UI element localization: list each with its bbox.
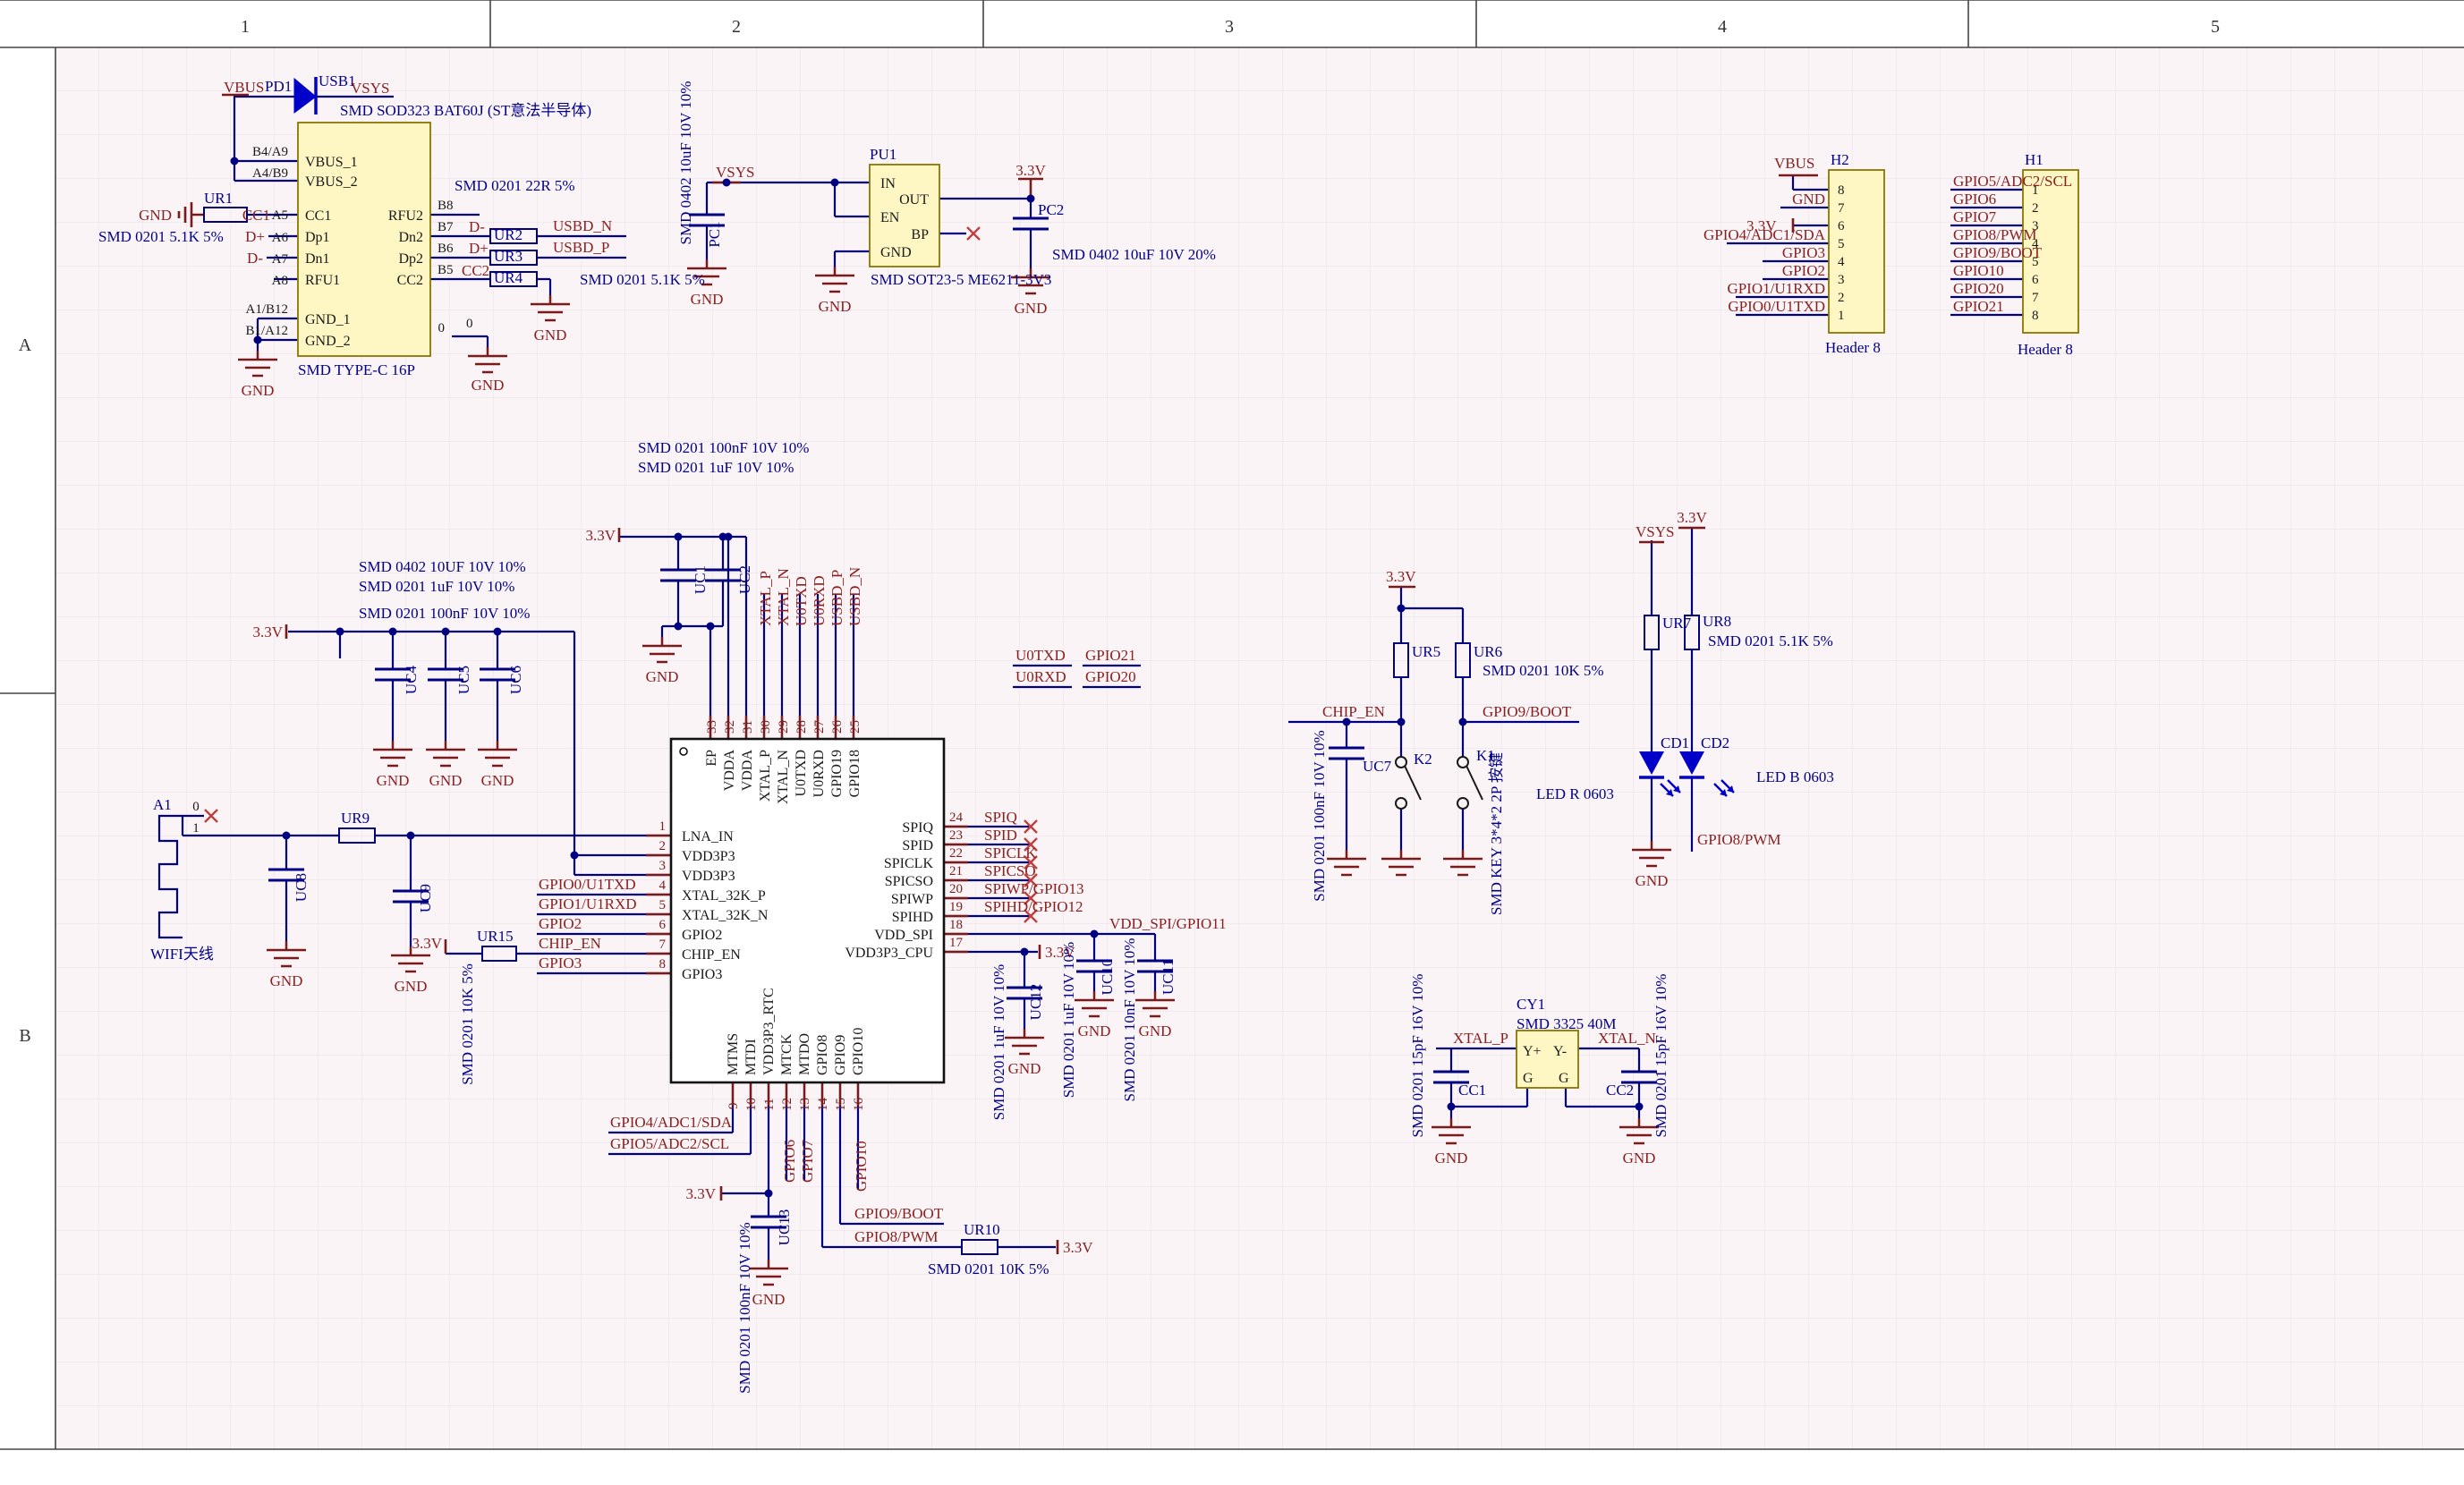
pin-number: 29 (777, 720, 791, 734)
net-label: CC2 (462, 262, 489, 279)
pin-number: 7 (1838, 201, 1845, 216)
net-label: GPIO1/U1RXD (1727, 280, 1825, 297)
value-pc1: SMD 0402 10uF 10V 10% (677, 81, 694, 245)
designator-ur3: UR3 (494, 248, 523, 265)
designator-uc6: UC6 (507, 666, 524, 694)
pin-number: 21 (949, 864, 963, 878)
pin-name: VDD3P3_CPU (845, 946, 933, 961)
net-label: GPIO7 (1953, 208, 1997, 225)
value-h2: Header 8 (1825, 339, 1881, 356)
pin-number: A7 (272, 252, 289, 267)
net-label: D+ (245, 228, 265, 245)
net-label-vsys: VSYS (1636, 523, 1674, 540)
pin-name: EN (880, 210, 900, 225)
pin-number: 5 (659, 898, 667, 912)
gnd-label: GND (242, 382, 275, 399)
gnd-label: GND (752, 1291, 786, 1308)
designator-ur10: UR10 (964, 1221, 1000, 1238)
value-ur15: SMD 0201 10K 5% (459, 963, 476, 1085)
pin-name: SPIQ (902, 820, 933, 836)
pin-number: 4 (2032, 237, 2039, 251)
net-label: GPIO0/U1TXD (539, 876, 636, 893)
pin-number: 13 (798, 1098, 812, 1111)
pin-name: EP (704, 750, 719, 767)
gnd-label: GND (1078, 1023, 1111, 1039)
net-label: SPIWP/GPIO13 (984, 880, 1083, 897)
gnd-label: GND (646, 668, 679, 685)
designator-pc2: PC2 (1038, 201, 1064, 218)
net-label: GPIO21 (1953, 298, 2004, 315)
designator-uc11: UC11 (1160, 959, 1177, 995)
value-pd1: SMD SOD323 BAT60J (ST意法半导体) (340, 102, 591, 119)
net-label: D- (247, 250, 263, 267)
pin-name: G (1523, 1071, 1534, 1086)
pin-name: GPIO2 (682, 928, 722, 943)
pin-number: 14 (816, 1098, 830, 1112)
pin-name: GND (880, 245, 912, 260)
pin-name: VBUS_1 (305, 155, 358, 170)
pin-number: 6 (659, 918, 667, 932)
gnd-label: GND (429, 772, 463, 789)
net-label: U0TXD (793, 576, 810, 626)
gnd-label: GND (270, 972, 303, 989)
value-uc1: SMD 0201 100nF 10V 10% (638, 439, 809, 456)
pin-name: Y- (1553, 1044, 1567, 1059)
pin-number: 0 (466, 317, 473, 331)
pin-number: 31 (741, 720, 755, 734)
pin-name: XTAL_N (776, 750, 791, 804)
designator-ur4: UR4 (494, 269, 523, 286)
net-label: SPICSO (984, 862, 1036, 879)
pin-number: 11 (762, 1099, 777, 1111)
pin-number: 1 (1838, 309, 1845, 323)
designator-cd2: CD2 (1701, 734, 1729, 751)
gnd-label: GND (691, 291, 724, 308)
designator-cy1: CY1 (1517, 996, 1545, 1013)
designator-ur2: UR2 (494, 226, 523, 243)
pin-number: 28 (794, 720, 809, 734)
pin-name: XTAL_32K_P (682, 888, 766, 904)
net-label: GPIO10 (1953, 262, 2004, 279)
pin-name: GND_1 (305, 312, 351, 327)
value-h1: Header 8 (2018, 341, 2073, 358)
gnd-label: GND (139, 207, 172, 224)
ruler-column-3: 3 (1225, 17, 1234, 37)
pin-name: G (1559, 1071, 1569, 1086)
pin-name: XTAL_32K_N (682, 908, 769, 923)
net-label: GPIO3 (539, 955, 582, 972)
pin-name: BP (911, 227, 929, 242)
designator-ur8: UR8 (1703, 613, 1731, 630)
designator-uc13: UC13 (776, 1209, 793, 1246)
net-label: CC1 (242, 207, 270, 224)
net-label: GPIO9/BOOT (1483, 703, 1572, 720)
pin-number: 4 (1838, 255, 1845, 269)
designator-k2: K2 (1414, 751, 1432, 768)
pin-number: 1 (192, 821, 200, 836)
net-label: GPIO4/ADC1/SDA (610, 1114, 733, 1131)
pin-number: 15 (834, 1098, 848, 1111)
pin-name: VBUS_2 (305, 174, 358, 190)
net-label: VDD_SPI/GPIO11 (1109, 915, 1227, 932)
value-uc2: SMD 0201 1uF 10V 10% (638, 459, 794, 476)
pin-number: 32 (723, 720, 737, 734)
designator-pu1: PU1 (870, 146, 896, 163)
pin-name: GPIO18 (847, 750, 862, 797)
pin-number: 0 (438, 321, 446, 335)
net-label: GPIO5/ADC2/SCL (1953, 173, 2072, 190)
pin-number: 27 (812, 720, 827, 734)
net-label: GPIO8/PWM (1697, 831, 1781, 848)
pin-number: 5 (2032, 255, 2039, 269)
pin-number: 19 (949, 900, 963, 914)
designator-uc7: UC7 (1363, 758, 1392, 775)
net-label: XTAL_N (775, 568, 792, 626)
net-label: USBD_P (553, 239, 609, 256)
pin-name: GPIO9 (833, 1035, 848, 1075)
pin-number: 12 (780, 1098, 794, 1111)
pin-number: 20 (949, 882, 963, 896)
pin-number: 23 (949, 828, 963, 843)
schematic-canvas[interactable]: 12345AB (0, 0, 2464, 1485)
net-label: GPIO6 (1953, 191, 1996, 208)
pin-number: 7 (2032, 291, 2039, 305)
pin-number: 1 (2032, 183, 2039, 198)
net-label: U0RXD (811, 575, 828, 626)
pin-name: SPICLK (884, 856, 934, 871)
pin-name: Dn2 (398, 230, 423, 245)
pin-name: OUT (899, 192, 929, 208)
net-label: U0TXD (1015, 647, 1066, 664)
designator-uc5: UC5 (455, 666, 472, 694)
net-label: 3.3V (685, 1185, 716, 1202)
ruler-column-4: 4 (1718, 17, 1727, 37)
pin-name: CHIP_EN (682, 947, 741, 963)
net-label: GPIO8/PWM (1953, 226, 2037, 243)
value-cd1: LED R 0603 (1536, 785, 1614, 802)
net-label: GPIO8/PWM (854, 1228, 939, 1245)
pin-number: A8 (272, 274, 288, 288)
net-label: XTAL_P (1453, 1030, 1508, 1047)
value-uc12: SMD 0201 1uF 10V 10% (990, 964, 1007, 1120)
net-label: GPIO6 (781, 1140, 798, 1183)
net-label: VBUS (1774, 155, 1814, 172)
net-label: GPIO2 (1782, 262, 1825, 279)
pin-number: 0 (192, 800, 200, 814)
pin-number: 24 (949, 810, 964, 825)
value-uc10: SMD 0201 1uF 10V 10% (1060, 942, 1077, 1098)
pin-name: GPIO3 (682, 967, 722, 982)
net-label: XTAL_N (1598, 1030, 1656, 1047)
gnd-label: GND (1636, 872, 1669, 889)
ruler-row-A: A (19, 335, 32, 355)
pin-name: VDD_SPI (874, 928, 933, 943)
pin-name: MTCK (779, 1033, 794, 1075)
value-cc2: SMD 0201 15pF 16V 10% (1653, 974, 1670, 1138)
net-label: GPIO2 (539, 915, 582, 932)
pin-number: 33 (705, 720, 719, 734)
pin-number: B5 (438, 263, 454, 277)
designator-cd1: CD1 (1661, 734, 1689, 751)
designator-uc8: UC8 (293, 873, 310, 902)
net-label: GPIO5/ADC2/SCL (610, 1135, 729, 1152)
pin-name: SPIHD (892, 910, 933, 925)
pin-number: 26 (830, 720, 845, 734)
net-label: U0RXD (1015, 668, 1066, 685)
schematic-sheet: 12345AB (0, 0, 2464, 1485)
value-ur8: SMD 0201 5.1K 5% (1708, 632, 1833, 649)
pin-number: 4 (659, 878, 667, 893)
pin-name: GND_2 (305, 334, 351, 349)
pin-number: 10 (744, 1098, 759, 1111)
pin-number: 6 (1838, 219, 1845, 233)
net-label: GPIO20 (1085, 668, 1136, 685)
pin-number: 18 (949, 918, 963, 932)
value-usb1: SMD TYPE-C 16P (298, 361, 415, 378)
gnd-label: GND (472, 377, 505, 394)
value-ur6: SMD 0201 10K 5% (1483, 662, 1604, 679)
ruler-column-5: 5 (2211, 17, 2220, 37)
pin-number: 17 (949, 936, 964, 950)
value-pc2: SMD 0402 10uF 10V 20% (1052, 246, 1216, 263)
designator-ur9: UR9 (341, 810, 370, 827)
value-uc6: SMD 0201 100nF 10V 10% (359, 605, 530, 622)
net-label: GPIO4/ADC1/SDA (1704, 226, 1826, 243)
designator-uc2: UC2 (736, 565, 753, 594)
net-label: SPID (984, 827, 1017, 844)
value-keys: SMD KEY 3*4*2 2P 按键 (1488, 752, 1505, 915)
pin-name: GPIO10 (851, 1028, 866, 1075)
net-label: GPIO10 (853, 1141, 870, 1192)
gnd-label: GND (1623, 1150, 1656, 1167)
net-label: SPICLK (984, 844, 1037, 861)
value-uc13: SMD 0201 100nF 10V 10% (736, 1222, 753, 1393)
pin-name: VDD3P3 (682, 849, 735, 864)
pin-number: 7 (659, 938, 667, 952)
pin-name: CC2 (397, 273, 423, 288)
pin-name: SPICSO (885, 874, 933, 889)
net-label: 3.3V (1063, 1239, 1093, 1256)
net-label: GPIO9/BOOT (1953, 244, 2043, 261)
net-label: 3.3V (1386, 568, 1416, 585)
gnd-label: GND (395, 978, 428, 995)
value-cc1: SMD 0201 15pF 16V 10% (1409, 974, 1426, 1138)
net-label: 3.3V (1677, 509, 1707, 526)
gnd-label: GND (1435, 1150, 1468, 1167)
pin-name: MTMS (726, 1033, 741, 1075)
pin-name: RFU2 (388, 208, 423, 224)
net-label: GND (1792, 191, 1825, 208)
pin-name: SPID (902, 838, 933, 853)
pin-number: 6 (2032, 273, 2039, 287)
designator-ur7: UR7 (1662, 615, 1692, 632)
designator-pc1: PC1 (706, 221, 723, 247)
pin-number: 3 (659, 859, 667, 873)
pin-name: VDDA (740, 750, 755, 792)
designator-uc4: UC4 (403, 665, 420, 694)
pin-name: RFU1 (305, 273, 340, 288)
pin-number: B6 (438, 242, 454, 256)
pin-number: A6 (272, 231, 289, 245)
pin-number: 5 (1838, 237, 1845, 251)
gnd-label: GND (819, 298, 852, 315)
gnd-label: GND (377, 772, 410, 789)
designator-pd1: PD1 (265, 78, 292, 95)
pin-number: 16 (852, 1098, 866, 1112)
designator-uc1: UC1 (692, 565, 709, 594)
value-ur1: SMD 0201 5.1K 5% (98, 228, 224, 245)
pin-number: 3 (1838, 273, 1845, 287)
net-label: XTAL_P (757, 571, 774, 626)
pin-number: 2 (659, 839, 667, 853)
net-label: GPIO20 (1953, 280, 2004, 297)
value-uc7: SMD 0201 100nF 10V 10% (1311, 730, 1328, 901)
net-label: USBD_N (553, 217, 612, 234)
pin-number: 8 (659, 957, 667, 972)
net-label: 3.3V (252, 624, 283, 641)
value-ur10: SMD 0201 10K 5% (928, 1260, 1049, 1277)
pin-name: Dp1 (305, 230, 330, 245)
net-label: USBD_P (828, 570, 845, 626)
pin-number: A4/B9 (252, 166, 288, 181)
designator-uc9: UC9 (417, 884, 434, 912)
gnd-label: GND (1015, 300, 1048, 317)
pin-name: VDD3P3_RTC (761, 988, 777, 1075)
net-label: GPIO3 (1782, 244, 1825, 261)
designator-a1: A1 (153, 796, 172, 813)
pin-name: Dn1 (305, 251, 330, 267)
value-cd2: LED B 0603 (1756, 768, 1834, 785)
designator-ur15: UR15 (477, 928, 514, 945)
designator-ur1: UR1 (204, 190, 233, 207)
net-label: GPIO0/U1TXD (1728, 298, 1825, 315)
net-label: GPIO1/U1RXD (539, 895, 637, 912)
pin-number: B1/A12 (245, 324, 288, 338)
pin-name: CC1 (305, 208, 331, 224)
pin-name: XTAL_P (758, 750, 773, 802)
net-label: CHIP_EN (1322, 703, 1385, 720)
pin-name: U0RXD (811, 750, 827, 797)
ruler-column-2: 2 (732, 17, 741, 37)
ruler-column-1: 1 (241, 17, 250, 37)
pin-number: 1 (659, 819, 667, 834)
gnd-label: GND (1139, 1023, 1172, 1039)
net-label-vbus: VBUS (224, 79, 264, 96)
pin-name: IN (880, 176, 896, 191)
net-label: D+ (469, 240, 489, 257)
pin-name: GPIO19 (829, 750, 845, 797)
pin-name: SPIWP (891, 892, 933, 907)
designator-uc10: UC10 (1099, 959, 1116, 996)
net-label: SPIQ (984, 809, 1017, 826)
pin-name: VDD3P3 (682, 869, 735, 884)
value-ur2: SMD 0201 22R 5% (455, 177, 575, 194)
value-uc4: SMD 0402 10UF 10V 10% (359, 558, 526, 575)
net-label: USBD_N (846, 567, 863, 626)
net-label: GPIO7 (799, 1139, 816, 1183)
pin-number: 25 (848, 720, 862, 734)
designator-ur5: UR5 (1412, 643, 1440, 660)
designator-cc2: CC2 (1606, 1082, 1634, 1099)
pin-number: 22 (949, 846, 963, 861)
pin-number: B4/A9 (252, 145, 288, 159)
value-uc5: SMD 0201 1uF 10V 10% (359, 578, 514, 595)
value-ur4: SMD 0201 5.1K 5% (580, 271, 705, 288)
pin-name: VDDA (722, 750, 737, 792)
pin-number: B8 (438, 199, 454, 213)
designator-ur6: UR6 (1474, 643, 1502, 660)
value-pu1: SMD SOT23-5 ME6211-3V3 (871, 271, 1051, 288)
pin-number: A5 (272, 208, 288, 223)
pin-number: A1/B12 (245, 302, 288, 317)
pin-name: U0TXD (794, 750, 809, 796)
pin-number: 3 (2032, 219, 2039, 233)
net-label-vsys: VSYS (716, 164, 754, 181)
pin-name: MTDO (797, 1033, 812, 1075)
net-label: D- (469, 218, 485, 235)
net-label: GPIO9/BOOT (854, 1205, 944, 1222)
gnd-label: GND (481, 772, 514, 789)
designator-h1: H1 (2025, 151, 2043, 168)
pin-name: MTDI (743, 1039, 759, 1075)
net-label: CHIP_EN (539, 935, 601, 952)
pin-number: 9 (726, 1103, 741, 1110)
value-a1: WIFI天线 (150, 946, 214, 963)
designator-uc12: UC12 (1027, 984, 1044, 1021)
net-label: GPIO21 (1085, 647, 1136, 664)
pin-name: GPIO8 (815, 1035, 830, 1075)
net-label-vsys: VSYS (351, 80, 389, 97)
designator-cc1: CC1 (1458, 1082, 1486, 1099)
pin-number: 8 (1838, 183, 1845, 198)
net-label: 3.3V (412, 935, 442, 952)
pin-number: 2 (1838, 291, 1845, 305)
pin-name: LNA_IN (682, 829, 734, 844)
pin-name: Y+ (1523, 1044, 1542, 1059)
pin-number: 8 (2032, 309, 2039, 323)
pin-number: 2 (2032, 201, 2039, 216)
value-uc11: SMD 0201 10nF 10V 10% (1121, 938, 1138, 1102)
net-label: SPIHD/GPIO12 (984, 898, 1083, 915)
pin-number: B7 (438, 220, 454, 234)
designator-h2: H2 (1831, 151, 1849, 168)
pin-name: Dp2 (398, 251, 423, 267)
gnd-label: GND (1008, 1060, 1041, 1077)
net-label: 3.3V (1015, 162, 1046, 179)
gnd-label: GND (534, 327, 567, 344)
ruler-row-B: B (19, 1026, 30, 1046)
net-label: 3.3V (585, 527, 616, 544)
pin-number: 30 (759, 720, 773, 734)
